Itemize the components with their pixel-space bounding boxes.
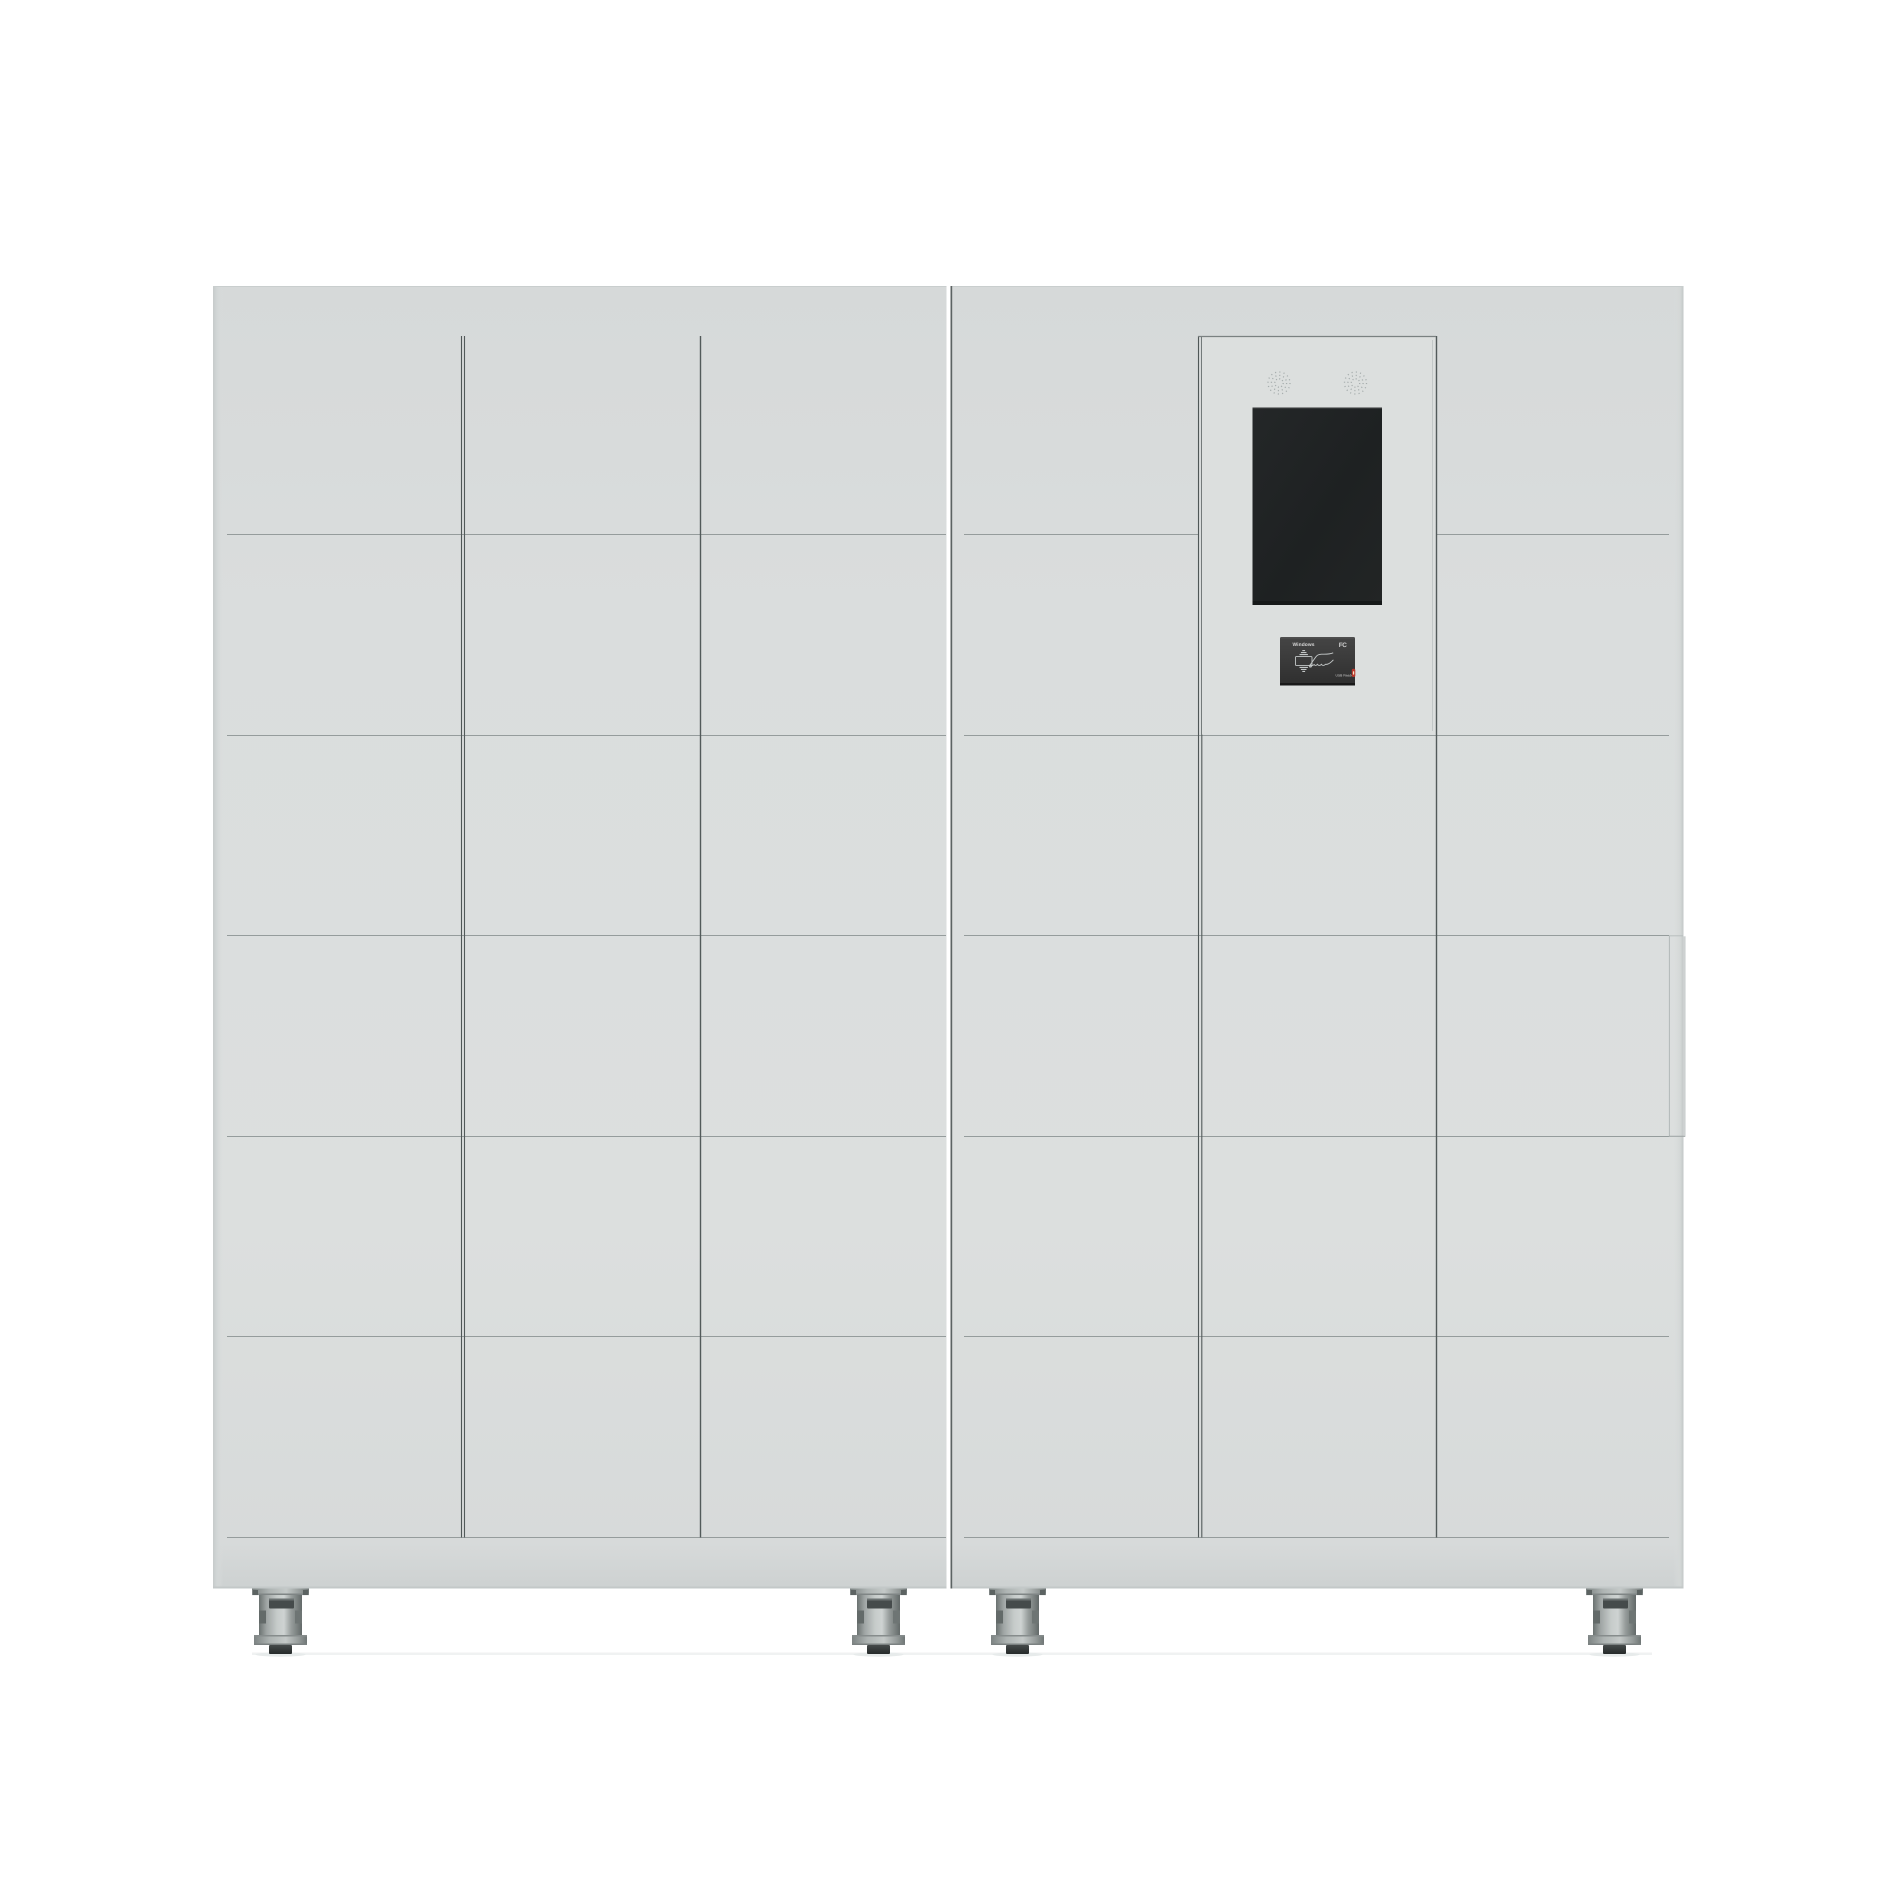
svg-text:FC: FC [1339, 642, 1348, 649]
svg-text:Windows: Windows [1293, 642, 1315, 648]
